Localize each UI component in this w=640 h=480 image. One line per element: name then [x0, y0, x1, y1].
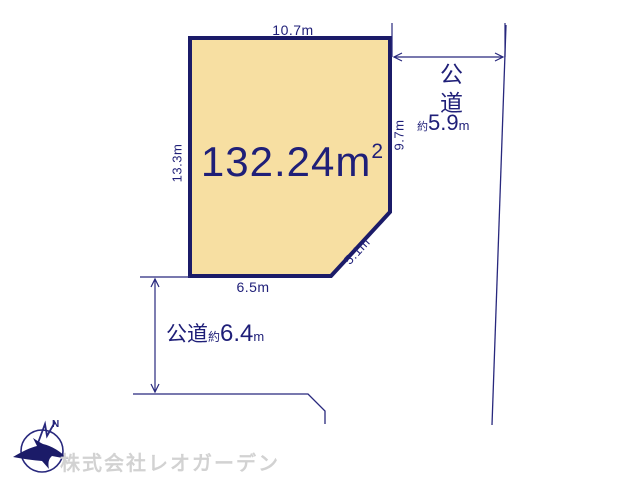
dim-label-right: 9.7m — [392, 120, 407, 151]
road-bottom-unit: m — [253, 329, 264, 344]
road-bottom-label: 公道約6.4m — [166, 318, 264, 348]
road-right-approx: 約 — [417, 121, 428, 133]
road-right-unit: m — [459, 118, 470, 133]
road-right-width: 約5.9m — [417, 110, 469, 136]
dim-arrow-road-right — [392, 23, 505, 61]
area-unit: m — [335, 138, 371, 185]
dim-label-bottom: 6.5m — [236, 279, 269, 295]
road-bottom-name: 公道 — [166, 323, 208, 346]
compass-north-label: N — [52, 419, 59, 430]
area-superscript: 2 — [371, 140, 383, 163]
road-right-value: 5.9 — [428, 110, 459, 135]
dim-label-left: 13.3m — [170, 144, 185, 183]
dim-label-top: 10.7m — [272, 22, 313, 38]
road-bottom-approx: 約 — [208, 330, 220, 344]
road-right-line — [492, 25, 506, 425]
land-plot-diagram: 10.7m 13.3m 9.7m 5.1m 6.5m 132.24m2 公道 約… — [0, 0, 640, 480]
road-bottom-value: 6.4 — [220, 320, 253, 347]
plan-drawing — [0, 0, 640, 480]
company-watermark: 株式会社レオガーデン — [60, 447, 280, 476]
area-value: 132.24 — [201, 138, 335, 185]
area-label: 132.24m2 — [201, 138, 383, 186]
road-bottom-line — [133, 394, 325, 424]
